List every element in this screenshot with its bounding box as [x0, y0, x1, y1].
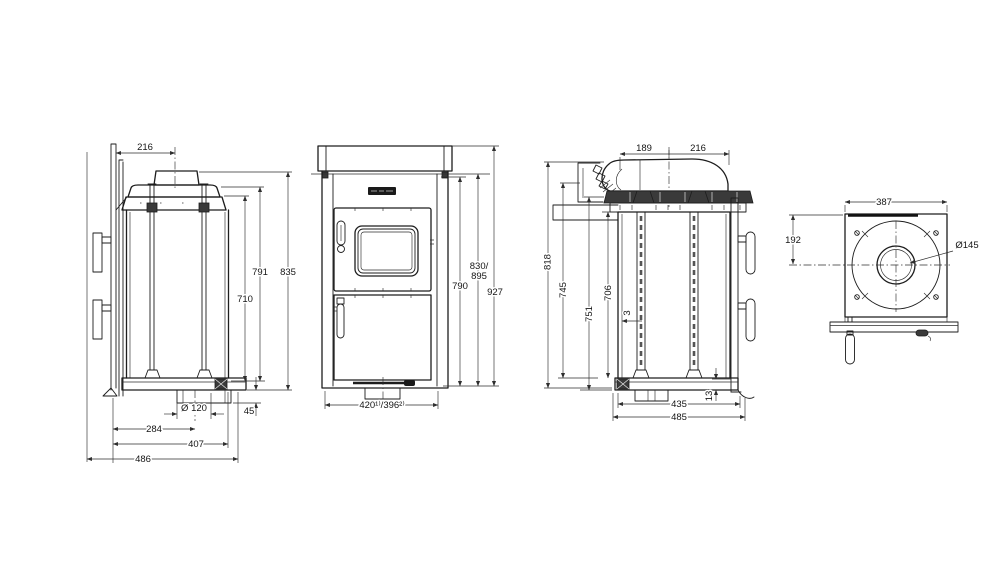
- hinge-bracket-upper: [93, 233, 111, 272]
- front-flange-top: [830, 317, 958, 364]
- view-side-right: 189 216 818 745 751 706 3 435 485 13: [543, 143, 756, 423]
- riddling-lever: [353, 380, 415, 386]
- boiler-body: [127, 210, 229, 378]
- fire-door: [334, 208, 434, 291]
- dim-base-diameter: Ø 120: [181, 403, 207, 414]
- top-casing: [318, 146, 452, 178]
- dim-top-right: 216: [690, 143, 706, 154]
- dim-h-total: 927: [487, 287, 503, 298]
- tie-rod-front: [145, 184, 160, 378]
- door-edge-panel: [116, 160, 127, 396]
- tie-rod-a: [633, 212, 649, 378]
- dim-gap: 3: [622, 310, 633, 315]
- dim-h-b: 751: [584, 306, 595, 322]
- dim-h-variant-2: 895: [471, 271, 487, 282]
- dimensions-side-right: 189 216 818 745 751 706 3 435 485 13: [543, 143, 746, 423]
- door-window: [355, 226, 418, 276]
- base-plate-side: [615, 378, 738, 401]
- drawing-page: 216 710 791 835 45 Ø 120 284 407 486: [0, 0, 996, 580]
- top-cap: [122, 185, 226, 210]
- dim-d-total: 486: [135, 454, 151, 465]
- dimensions-side-left: 216 710 791 835 45 Ø 120 284 407 486: [87, 142, 296, 465]
- door-handle-top: [846, 331, 855, 364]
- view-side-left: 216 710 791 835 45 Ø 120 284 407 486: [87, 142, 296, 465]
- dim-h-body: 710: [237, 294, 253, 305]
- door-handle-lower: [337, 298, 344, 338]
- dim-flue-offset: 192: [785, 235, 801, 246]
- dimensions-front: 420¹⁾/396²⁾ 790 830/ 895 927: [325, 146, 503, 411]
- dim-flue-diameter: Ø145: [955, 240, 978, 251]
- dim-h-casing: 790: [452, 281, 468, 292]
- view-front: 420¹⁾/396²⁾ 790 830/ 895 927: [311, 146, 503, 411]
- dim-top-left: 189: [636, 143, 652, 154]
- ash-door: [334, 295, 431, 380]
- dim-d-mid: 407: [188, 439, 204, 450]
- dim-d-total: 485: [671, 412, 687, 423]
- cabinet: [322, 171, 448, 388]
- door-handle-upper-side: [738, 232, 755, 274]
- dimensions-top: 387 192 Ø145: [785, 197, 979, 264]
- dim-base-drop: 45: [244, 406, 255, 417]
- dim-w-bottom: 420¹⁾/396²⁾: [359, 400, 404, 411]
- wall-plate: [103, 144, 117, 396]
- technical-drawing: 216 710 791 835 45 Ø 120 284 407 486: [0, 0, 996, 580]
- front-panel-edge: [731, 198, 754, 398]
- tie-rod-rear: [197, 184, 212, 378]
- center-lines: [789, 221, 950, 312]
- dim-d-inner: 435: [671, 399, 687, 410]
- boiler-body-side: [618, 212, 730, 378]
- brand-logo-badge: [368, 187, 396, 195]
- dim-h-total: 818: [543, 254, 554, 270]
- top-plate-circle: [789, 221, 950, 312]
- dim-flue-offset: 216: [137, 142, 153, 153]
- base-plate: [122, 378, 246, 390]
- dim-base-lip: 13: [704, 391, 715, 402]
- view-top: 387 192 Ø145: [785, 197, 979, 364]
- dim-h-a: 745: [558, 282, 569, 298]
- dim-d-center: 284: [146, 424, 162, 435]
- dim-h-c: 706: [603, 285, 614, 301]
- door-handle-lower-side: [738, 299, 755, 341]
- door-handle-upper: [337, 221, 345, 253]
- tie-rod-b: [686, 212, 702, 378]
- dim-h-total: 835: [280, 267, 296, 278]
- dim-h-mid: 791: [252, 267, 268, 278]
- hinge-bracket-lower: [93, 300, 111, 339]
- dim-width: 387: [876, 197, 892, 208]
